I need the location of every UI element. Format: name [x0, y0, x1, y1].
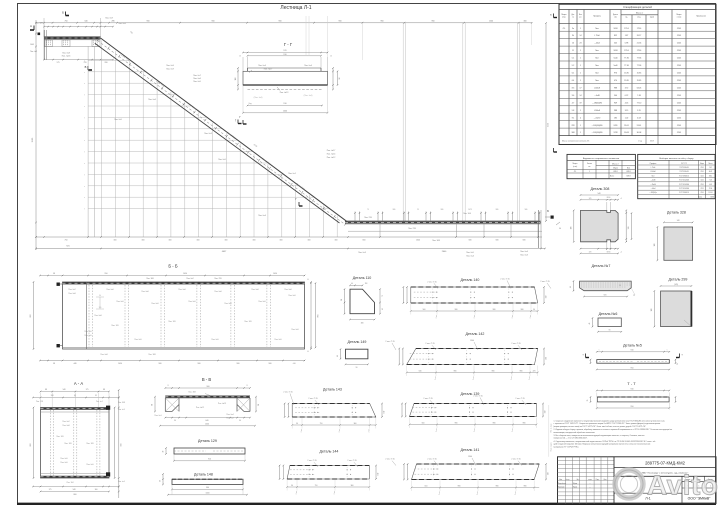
- svg-text:5.8: 5.8: [572, 110, 574, 112]
- svg-text:Л-1: Л-1: [574, 171, 577, 173]
- svg-text:910: 910: [208, 459, 211, 461]
- svg-text:С245: С245: [700, 184, 703, 186]
- svg-text:Пов. №1: Пов. №1: [96, 400, 103, 403]
- svg-text:Л-1: Л-1: [563, 28, 566, 30]
- svg-text:30.08: 30.08: [624, 132, 628, 134]
- svg-text:15: 15: [167, 385, 169, 387]
- svg-text:Масса наплавленного металла 1%: Масса наплавленного металла 1%: [562, 140, 590, 142]
- svg-text:90: 90: [339, 78, 341, 80]
- svg-text:77.36: 77.36: [624, 65, 628, 67]
- svg-text:Лист: Лист: [595, 28, 599, 30]
- svg-text:Пов. №9: Пов. №9: [291, 328, 298, 331]
- svg-text:С255: С255: [700, 188, 703, 190]
- svg-text:ГОСТ 103-2006: ГОСТ 103-2006: [679, 180, 689, 182]
- svg-text:3150: 3150: [548, 123, 550, 127]
- svg-text:1000: 1000: [205, 424, 209, 426]
- svg-text:Пов. №3: Пов. №3: [204, 132, 212, 135]
- svg-text:179.6: 179.6: [624, 28, 628, 30]
- svg-text:Всего: Всего: [698, 197, 702, 199]
- svg-text:Пов. №9: Пов. №9: [188, 300, 195, 303]
- svg-text:Масса кг: Масса кг: [612, 163, 619, 165]
- svg-text:Пов. №12: Пов. №12: [196, 406, 204, 409]
- svg-text:2 отв.: 2 отв.: [339, 428, 341, 432]
- svg-text:980: 980: [524, 486, 527, 488]
- svg-text:Пов. 308: Пов. 308: [146, 278, 153, 280]
- svg-text:—180(50)х: —180(50)х: [649, 192, 657, 194]
- svg-text:5.1: 5.1: [572, 58, 574, 60]
- svg-text:2 отв. ∅ 15: 2 отв. ∅ 15: [511, 342, 520, 345]
- svg-text:980: 980: [454, 371, 457, 373]
- svg-text:17: 17: [580, 88, 582, 90]
- svg-text:63.26: 63.26: [637, 88, 641, 90]
- svg-text:980: 980: [520, 371, 523, 373]
- svg-text:Пов. 308: Пов. 308: [432, 240, 440, 242]
- svg-text:Пов. №16: Пов. №16: [62, 55, 71, 58]
- svg-text:Изм: Изм: [559, 479, 562, 481]
- svg-text:2 отв.: 2 отв.: [439, 491, 441, 495]
- svg-text:980: 980: [159, 363, 162, 365]
- svg-text:Разработал: Разработал: [558, 483, 566, 485]
- svg-text:640: 640: [206, 420, 209, 422]
- svg-text:Пов. 308: Пов. 308: [148, 354, 155, 356]
- svg-text:Пов. №4: Пов. №4: [226, 413, 233, 416]
- svg-text:4.16: 4.16: [625, 102, 628, 104]
- svg-text:289775-07-КМД-КМ2: 289775-07-КМД-КМ2: [645, 461, 686, 466]
- svg-text:160: 160: [546, 357, 548, 360]
- svg-text:Профиль: Профиль: [593, 15, 601, 18]
- svg-text:90: 90: [533, 309, 535, 311]
- svg-text:С245: С245: [677, 35, 681, 37]
- svg-text:Пов. №17: Пов. №17: [327, 149, 336, 152]
- svg-text:Пов. №8: Пов. №8: [68, 292, 75, 295]
- svg-text:14: 14: [580, 35, 582, 37]
- svg-text:25: 25: [619, 285, 621, 287]
- svg-text:Пов. №4: Пов. №4: [258, 64, 266, 67]
- svg-text:5х44: 5х44: [614, 58, 618, 60]
- svg-text:б/ нд: б/ нд: [638, 140, 642, 142]
- svg-text:Пов. 128: Пов. 128: [36, 401, 43, 403]
- svg-text:860: 860: [74, 494, 77, 496]
- svg-text:С245: С245: [677, 132, 681, 134]
- svg-text:3.15: 3.15: [637, 110, 640, 112]
- svg-text:185: 185: [614, 117, 617, 119]
- svg-text:160: 160: [378, 473, 380, 476]
- svg-text:Пов. №7: Пов. №7: [193, 74, 201, 77]
- svg-text:2 отв. ∅ 15: 2 отв. ∅ 15: [385, 340, 394, 343]
- svg-text:910: 910: [283, 103, 286, 105]
- svg-text:3.15: 3.15: [625, 110, 628, 112]
- svg-text:(п-па): (п-па): [573, 166, 578, 168]
- svg-text:1: 1: [580, 125, 581, 127]
- svg-text:1500: 1500: [489, 20, 493, 22]
- svg-text:950: 950: [105, 273, 108, 275]
- svg-text:L100х8: L100х8: [594, 110, 600, 112]
- svg-text:610: 610: [425, 486, 428, 488]
- svg-text:Деталь 299: Деталь 299: [669, 277, 688, 281]
- svg-text:2 отв.: 2 отв.: [436, 428, 438, 432]
- svg-text:148: 148: [677, 220, 680, 222]
- svg-text:1618: 1618: [614, 28, 618, 30]
- svg-text:118: 118: [365, 283, 368, 285]
- svg-text:300: 300: [524, 20, 527, 22]
- svg-text:639.8: 639.8: [711, 197, 715, 199]
- svg-text:5х44: 5х44: [614, 65, 618, 67]
- svg-text:Пов. №5: Пов. №5: [84, 330, 91, 333]
- svg-text:2 отв.: 2 отв.: [515, 491, 517, 495]
- svg-text:отпр.: отпр.: [562, 17, 567, 19]
- svg-text:1. Сварные соединения выполнят: 1. Сварные соединения выполнять полуавто…: [554, 420, 665, 423]
- svg-text:Пов. 128: Пов. 128: [35, 23, 43, 25]
- svg-text:175: 175: [49, 489, 52, 491]
- svg-text:2 отв.: 2 отв.: [530, 314, 532, 318]
- svg-text:Деталь 144: Деталь 144: [320, 450, 339, 454]
- svg-text:Пов. №6: Пов. №6: [193, 77, 201, 80]
- svg-text:300: 300: [142, 240, 145, 242]
- svg-text:299: 299: [572, 125, 575, 127]
- svg-text:Пов. №5: Пов. №5: [60, 457, 67, 460]
- svg-text:359.2: 359.2: [709, 175, 713, 177]
- svg-text:980: 980: [493, 423, 496, 425]
- svg-text:1618: 1618: [614, 50, 618, 52]
- svg-text:2 отв. ∅ 15: 2 отв. ∅ 15: [283, 391, 292, 394]
- svg-text:ГОСТ. ТУ: ГОСТ. ТУ: [681, 163, 687, 165]
- svg-text:15.85: 15.85: [624, 73, 628, 75]
- svg-text:Пов. 109: Пов. 109: [64, 443, 71, 445]
- svg-text:90: 90: [258, 404, 260, 406]
- svg-text:980: 980: [441, 209, 444, 211]
- svg-text:286: 286: [112, 20, 115, 22]
- svg-text:Марки: Марки: [613, 167, 618, 169]
- svg-text:Пов. №6: Пов. №6: [214, 290, 221, 293]
- svg-text:66.41: 66.41: [709, 171, 713, 173]
- svg-text:548: 548: [598, 193, 601, 195]
- svg-text:90: 90: [174, 420, 176, 422]
- svg-text:С245: С245: [677, 80, 681, 82]
- svg-text:545: 545: [614, 43, 617, 45]
- svg-text:Деталь 129: Деталь 129: [198, 439, 217, 443]
- svg-text:2 отв.: 2 отв.: [301, 428, 303, 432]
- svg-text:446: 446: [74, 363, 77, 365]
- svg-text:980: 980: [523, 423, 526, 425]
- svg-text:Пов. №5: Пов. №5: [193, 80, 201, 83]
- svg-text:2 отв. ∅ 15: 2 отв. ∅ 15: [427, 280, 436, 283]
- svg-text:Пов. №9: Пов. №9: [166, 68, 174, 71]
- svg-text:160: 160: [546, 296, 548, 299]
- svg-text:С245: С245: [677, 125, 681, 127]
- svg-text:15.85: 15.85: [637, 80, 641, 82]
- svg-text:Деталь 308: Деталь 308: [591, 187, 610, 191]
- svg-text:179.6: 179.6: [637, 28, 641, 30]
- svg-text:Пов. 299: Пов. 299: [364, 217, 372, 219]
- svg-text:910: 910: [283, 54, 286, 56]
- svg-text:Деталь 141: Деталь 141: [461, 448, 480, 452]
- svg-text:1: 1: [580, 50, 581, 52]
- svg-text:№: №: [572, 16, 574, 19]
- svg-text:1.87: 1.87: [625, 35, 628, 37]
- svg-text:общ.: общ.: [637, 17, 641, 19]
- svg-text:4.08: 4.08: [637, 117, 640, 119]
- svg-text:14: 14: [580, 95, 582, 97]
- svg-text:360: 360: [354, 423, 357, 425]
- svg-text:90: 90: [99, 295, 101, 297]
- svg-text:Пов. №5: Пов. №5: [134, 338, 141, 341]
- svg-text:В - В: В - В: [202, 377, 212, 382]
- svg-text:Пов. №17: Пов. №17: [264, 67, 273, 70]
- svg-text:Пов. 109: Пов. 109: [56, 436, 63, 438]
- svg-text:639.8: 639.8: [614, 171, 618, 173]
- svg-text:980: 980: [492, 371, 495, 373]
- svg-text:980: 980: [455, 423, 458, 425]
- svg-text:Проверил: Проверил: [558, 487, 565, 489]
- svg-text:Пов. №5: Пов. №5: [466, 251, 474, 254]
- svg-text:88: 88: [103, 389, 105, 391]
- svg-text:90: 90: [356, 367, 358, 369]
- svg-text:2 отв.: 2 отв.: [296, 490, 298, 494]
- svg-text:9б: 9б: [572, 35, 574, 37]
- svg-text:С245: С245: [677, 43, 681, 45]
- svg-text:7.48: 7.48: [709, 180, 712, 182]
- svg-text:1: 1: [580, 132, 581, 134]
- svg-text:Пов. №5: Пов. №5: [84, 334, 91, 337]
- svg-text:Пов. 299: Пов. 299: [214, 278, 221, 280]
- svg-text:0.22: 0.22: [625, 95, 628, 97]
- svg-text:1450: 1450: [273, 273, 277, 275]
- svg-text:90: 90: [559, 228, 561, 230]
- svg-text:77.36: 77.36: [637, 58, 641, 60]
- svg-text:Лист: Лист: [595, 50, 599, 52]
- svg-text:175: 175: [57, 62, 60, 64]
- svg-text:180: 180: [651, 309, 653, 312]
- svg-text:2 отв.: 2 отв.: [369, 428, 371, 432]
- svg-text:360: 360: [351, 485, 354, 487]
- svg-text:960: 960: [206, 487, 209, 489]
- svg-text:15: 15: [330, 56, 332, 58]
- svg-text:179.6: 179.6: [637, 50, 641, 52]
- svg-text:2 отв.: 2 отв.: [473, 376, 475, 380]
- svg-text:Деталь 142: Деталь 142: [466, 332, 485, 336]
- svg-text:7.48: 7.48: [637, 95, 640, 97]
- svg-text:Пов. №6: Пов. №6: [148, 98, 156, 101]
- svg-text:Лист: Лист: [595, 65, 599, 67]
- svg-text:L100х8: L100х8: [651, 171, 656, 173]
- svg-text:750: 750: [65, 240, 68, 242]
- svg-text:179.6: 179.6: [624, 50, 628, 52]
- svg-text:Пов. 299: Пов. 299: [408, 228, 416, 230]
- svg-text:Пов. №8: Пов. №8: [100, 353, 107, 356]
- svg-text:Лист: Лист: [595, 80, 599, 82]
- svg-text:—40х4: —40х4: [651, 188, 656, 190]
- svg-text:80 90: 80 90: [607, 251, 611, 253]
- svg-text:ГОСТ 19903-74: ГОСТ 19903-74: [679, 192, 689, 194]
- svg-text:40: 40: [307, 279, 309, 281]
- svg-text:Всех: Всех: [627, 167, 631, 169]
- svg-text:Avito: Avito: [647, 470, 718, 501]
- svg-text:Примечание: Примечание: [696, 16, 706, 18]
- svg-text:2 отв.: 2 отв.: [474, 314, 476, 318]
- svg-text:91: 91: [95, 395, 97, 397]
- svg-text:Деталь №5: Деталь №5: [623, 344, 642, 348]
- svg-text:40: 40: [307, 351, 309, 353]
- svg-text:6.4: 6.4: [572, 80, 574, 82]
- svg-text:Деталь 140: Деталь 140: [461, 278, 480, 282]
- svg-text:300: 300: [308, 240, 311, 242]
- svg-text:40: 40: [589, 323, 591, 325]
- svg-text:поверхностей — 2 по СП 28.1333: поверхностей — 2 по СП 28.13330.2017.: [554, 437, 588, 440]
- svg-text:8.3: 8.3: [572, 88, 574, 90]
- svg-text:10: 10: [572, 43, 574, 45]
- svg-text:160: 160: [628, 227, 630, 230]
- svg-text:160: 160: [545, 411, 547, 414]
- svg-text:Б - Б: Б - Б: [168, 264, 177, 269]
- svg-text:980: 980: [455, 309, 458, 311]
- svg-text:40: 40: [337, 355, 339, 357]
- svg-text:(Пов. №6): (Пов. №6): [304, 94, 313, 97]
- svg-text:2 отв. ∅ 15: 2 отв. ∅ 15: [423, 397, 432, 400]
- svg-text:45: 45: [382, 308, 384, 310]
- svg-text:77.10: 77.10: [637, 102, 641, 104]
- svg-text:Деталь 110: Деталь 110: [353, 276, 372, 280]
- svg-text:Пов. №5: Пов. №5: [86, 463, 93, 466]
- svg-text:(145): (145): [674, 284, 678, 286]
- svg-text:15: 15: [239, 56, 241, 58]
- svg-text:980: 980: [521, 309, 524, 311]
- svg-text:Пов. №9: Пов. №9: [166, 64, 174, 67]
- svg-text:980: 980: [393, 209, 396, 211]
- svg-text:С245: С245: [677, 28, 681, 30]
- svg-text:980: 980: [458, 486, 461, 488]
- svg-text:Пов. №8: Пов. №8: [62, 424, 69, 427]
- svg-text:2 отв. ∅ 15: 2 отв. ∅ 15: [540, 280, 549, 283]
- svg-text:С245: С245: [677, 88, 681, 90]
- svg-text:2 отв.: 2 отв.: [512, 428, 514, 432]
- svg-text:материалов ТУ 'СОРиУ РУПа'.: материалов ТУ 'СОРиУ РУПа'.: [554, 446, 580, 448]
- svg-text:15.85: 15.85: [637, 73, 641, 75]
- svg-text:2 отв.: 2 отв.: [529, 376, 531, 380]
- svg-text:1: 1: [580, 28, 581, 30]
- svg-text:280: 280: [105, 62, 108, 64]
- svg-text:Пов. №13: Пов. №13: [218, 402, 226, 405]
- svg-text:40: 40: [351, 283, 353, 285]
- svg-text:548: 548: [73, 489, 76, 491]
- svg-text:921: 921: [66, 246, 69, 248]
- svg-text:9.6: 9.6: [572, 95, 574, 97]
- svg-text:470: 470: [533, 371, 536, 373]
- svg-text:Пов. №1: Пов. №1: [288, 172, 296, 175]
- svg-text:4: 4: [580, 117, 581, 119]
- svg-text:Пов. №9: Пов. №9: [105, 17, 113, 20]
- svg-text:Масса кг: Масса кг: [636, 13, 644, 15]
- svg-text:Т - Т: Т - Т: [627, 381, 636, 386]
- svg-text:2 отв. ∅ 15: 2 отв. ∅ 15: [425, 342, 434, 345]
- svg-text:Пов. №2: Пов. №2: [226, 417, 233, 420]
- svg-text:300: 300: [253, 240, 256, 242]
- svg-text:9а: 9а: [572, 28, 574, 30]
- svg-text:L 75х6: L 75х6: [594, 35, 599, 37]
- svg-text:Лист: Лист: [595, 58, 599, 60]
- svg-text:3. Все сборные швы, поверхност: 3. Все сборные швы, поверхности металлок…: [554, 434, 645, 437]
- svg-text:98: 98: [53, 273, 55, 275]
- svg-text:3.72: 3.72: [625, 88, 628, 90]
- svg-text:Жуков: Жуков: [573, 483, 577, 485]
- svg-text:щей толщиной покрытия 100 мкм.: щей толщиной покрытия 100 мкм. Покраска …: [554, 443, 651, 446]
- svg-text:0.98: 0.98: [625, 43, 628, 45]
- svg-text:75: 75: [382, 295, 384, 297]
- svg-text:976: 976: [614, 73, 617, 75]
- svg-text:30.08: 30.08: [637, 132, 641, 134]
- svg-text:Пов. 308: Пов. 308: [188, 392, 195, 394]
- svg-text:+90: +90: [292, 363, 295, 365]
- svg-text:90: 90: [152, 404, 154, 406]
- svg-text:1: 1: [580, 65, 581, 67]
- svg-text:С245: С245: [700, 167, 703, 169]
- svg-text:4.7: 4.7: [572, 102, 574, 104]
- svg-text:А - А: А - А: [74, 381, 84, 386]
- svg-text:Пов. 109: Пов. 109: [244, 321, 251, 323]
- svg-text:580: 580: [469, 240, 472, 242]
- svg-text:2 отв.: 2 отв.: [436, 314, 438, 318]
- svg-text:—15х40: —15х40: [650, 184, 656, 186]
- svg-text:300: 300: [169, 240, 172, 242]
- svg-text:Пов. №9: Пов. №9: [258, 300, 265, 303]
- svg-text:170: 170: [589, 198, 592, 200]
- svg-text:180: 180: [654, 244, 656, 247]
- svg-text:900: 900: [279, 20, 282, 22]
- svg-text:ГОСТ 8509-93: ГОСТ 8509-93: [679, 171, 688, 173]
- svg-text:Кол.уч: Кол.уч: [566, 479, 570, 481]
- svg-text:30: 30: [160, 480, 162, 482]
- svg-text:639.8: 639.8: [627, 171, 631, 173]
- svg-text:С245: С245: [700, 192, 703, 194]
- svg-text:С245: С245: [677, 50, 681, 52]
- svg-text:300: 300: [225, 240, 228, 242]
- svg-text:Пов. №6: Пов. №6: [284, 288, 291, 291]
- svg-text:77.36: 77.36: [624, 58, 628, 60]
- svg-text:980: 980: [496, 209, 499, 211]
- svg-text:1: 1: [589, 171, 590, 173]
- svg-text:(вырез проварки, катеты швов): (вырез проварки, катеты швов) по ГОСТ 14…: [554, 425, 647, 428]
- svg-text:В: В: [85, 65, 87, 69]
- svg-text:1475: 1475: [468, 209, 472, 211]
- svg-text:ГОСТ 19903-74: ГОСТ 19903-74: [679, 175, 689, 177]
- svg-text:2 отв. ∅ 15: 2 отв. ∅ 15: [500, 278, 509, 281]
- svg-text:300: 300: [335, 240, 338, 242]
- svg-text:С245: С245: [700, 175, 703, 177]
- svg-text:Марка: Марка: [573, 163, 578, 165]
- svg-text:40: 40: [570, 286, 572, 288]
- svg-text:Пов. №5: Пов. №5: [218, 158, 226, 161]
- svg-text:ГОСТ 8509-93: ГОСТ 8509-93: [679, 167, 688, 169]
- svg-text:21.56: 21.56: [637, 43, 641, 45]
- svg-text:19: 19: [580, 102, 582, 104]
- svg-text:Деталь 148: Деталь 148: [194, 473, 213, 477]
- svg-text:4.08: 4.08: [709, 184, 712, 186]
- svg-text:1340: 1340: [470, 340, 474, 342]
- svg-text:88: 88: [45, 389, 47, 391]
- svg-text:С255: С255: [677, 117, 681, 119]
- svg-text:1445: 1445: [30, 44, 34, 46]
- svg-text:—15х70: —15х70: [594, 117, 601, 119]
- svg-text:26.17: 26.17: [637, 35, 641, 37]
- svg-text:750: 750: [65, 20, 68, 22]
- svg-text:Лестница Л-1: Лестница Л-1: [280, 5, 311, 11]
- svg-text:стали: стали: [677, 17, 682, 19]
- svg-text:Пов. №13: Пов. №13: [280, 91, 289, 94]
- svg-text:Пов. №9: Пов. №9: [151, 302, 158, 305]
- svg-text:Пов. 109: Пов. 109: [86, 443, 93, 445]
- svg-text:9.1: 9.1: [572, 117, 574, 119]
- svg-text:Г - Г: Г - Г: [284, 42, 293, 47]
- svg-text:180: 180: [361, 322, 364, 324]
